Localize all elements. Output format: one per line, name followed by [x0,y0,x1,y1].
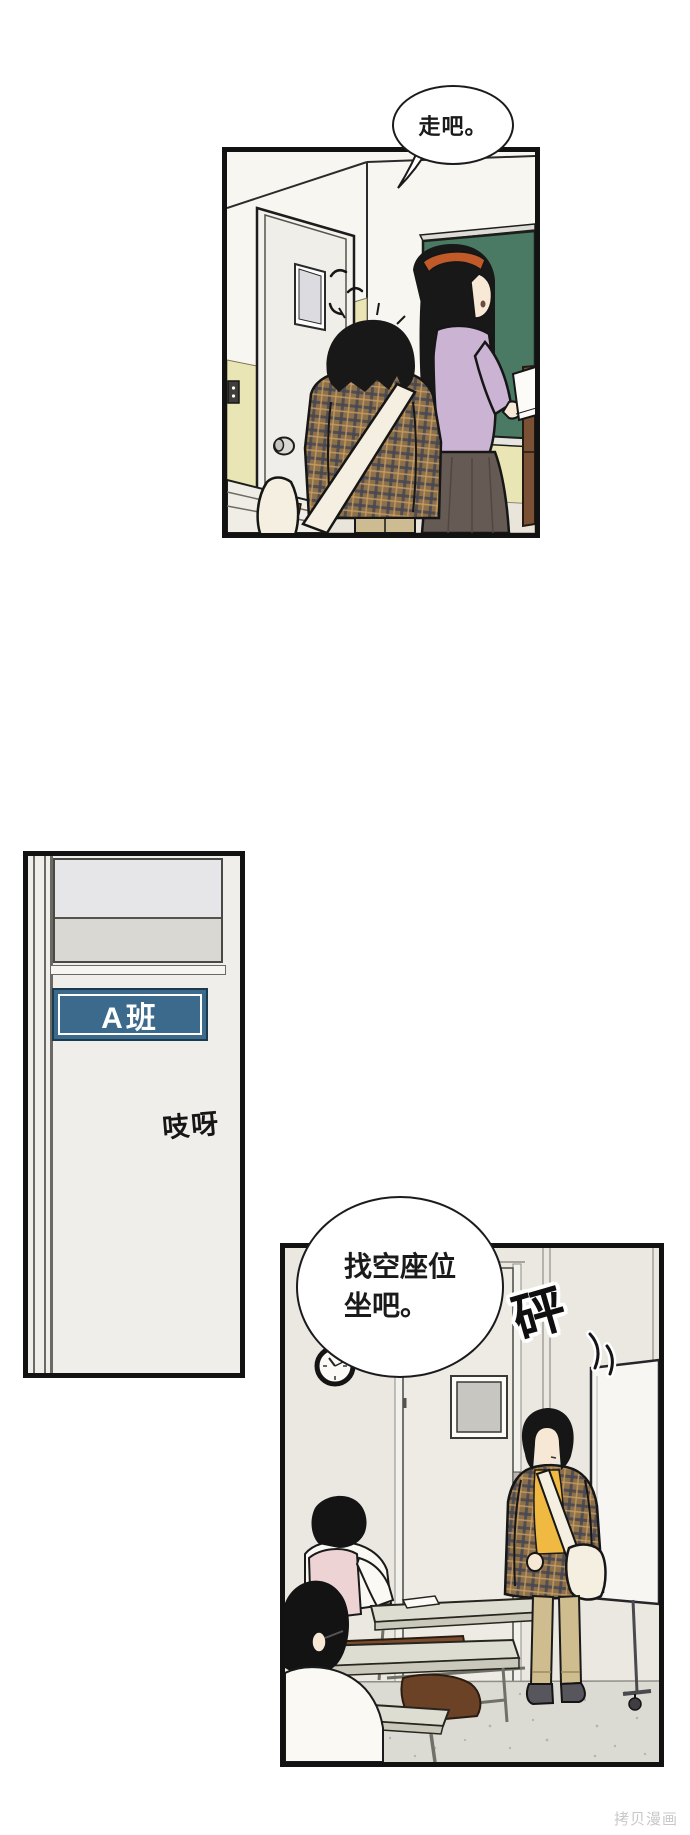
watermark: 拷贝漫画 [614,1808,678,1829]
comic-page: A班 吱呀 [0,0,690,1835]
shoulder-bag [566,1545,605,1600]
speech-text-line2: 坐吧。 [344,1287,456,1326]
shoe [561,1683,585,1702]
hand [527,1553,543,1571]
shoulder-bag [258,478,298,534]
speech-bubble-lets-go: 走吧。 [392,85,514,165]
hair [312,1496,367,1548]
door-window-sill [50,965,226,975]
speech-text: 走吧。 [418,109,487,141]
panel-class-door: A班 吱呀 [23,851,245,1378]
light-switch [228,381,239,403]
stand-wheel [629,1698,641,1710]
door-frame-line [44,856,46,1373]
class-a-door-sign: A班 [52,988,208,1041]
door-window [53,858,223,963]
panel-classroom-chalkboard [222,147,540,538]
door-window-upper-pane [55,860,221,919]
panel1-scene [227,152,535,533]
ear [312,1632,326,1652]
shoe [527,1684,553,1704]
pants [531,1596,553,1684]
sfx-door-creak: 吱呀 [160,1102,221,1146]
speech-bubble-find-seat: 找空座位 坐吧。 [296,1196,504,1378]
door-frame-line [33,856,35,1373]
speech-text-line1: 找空座位 [344,1248,456,1287]
class-a-door-sign-label: A班 [58,994,202,1035]
